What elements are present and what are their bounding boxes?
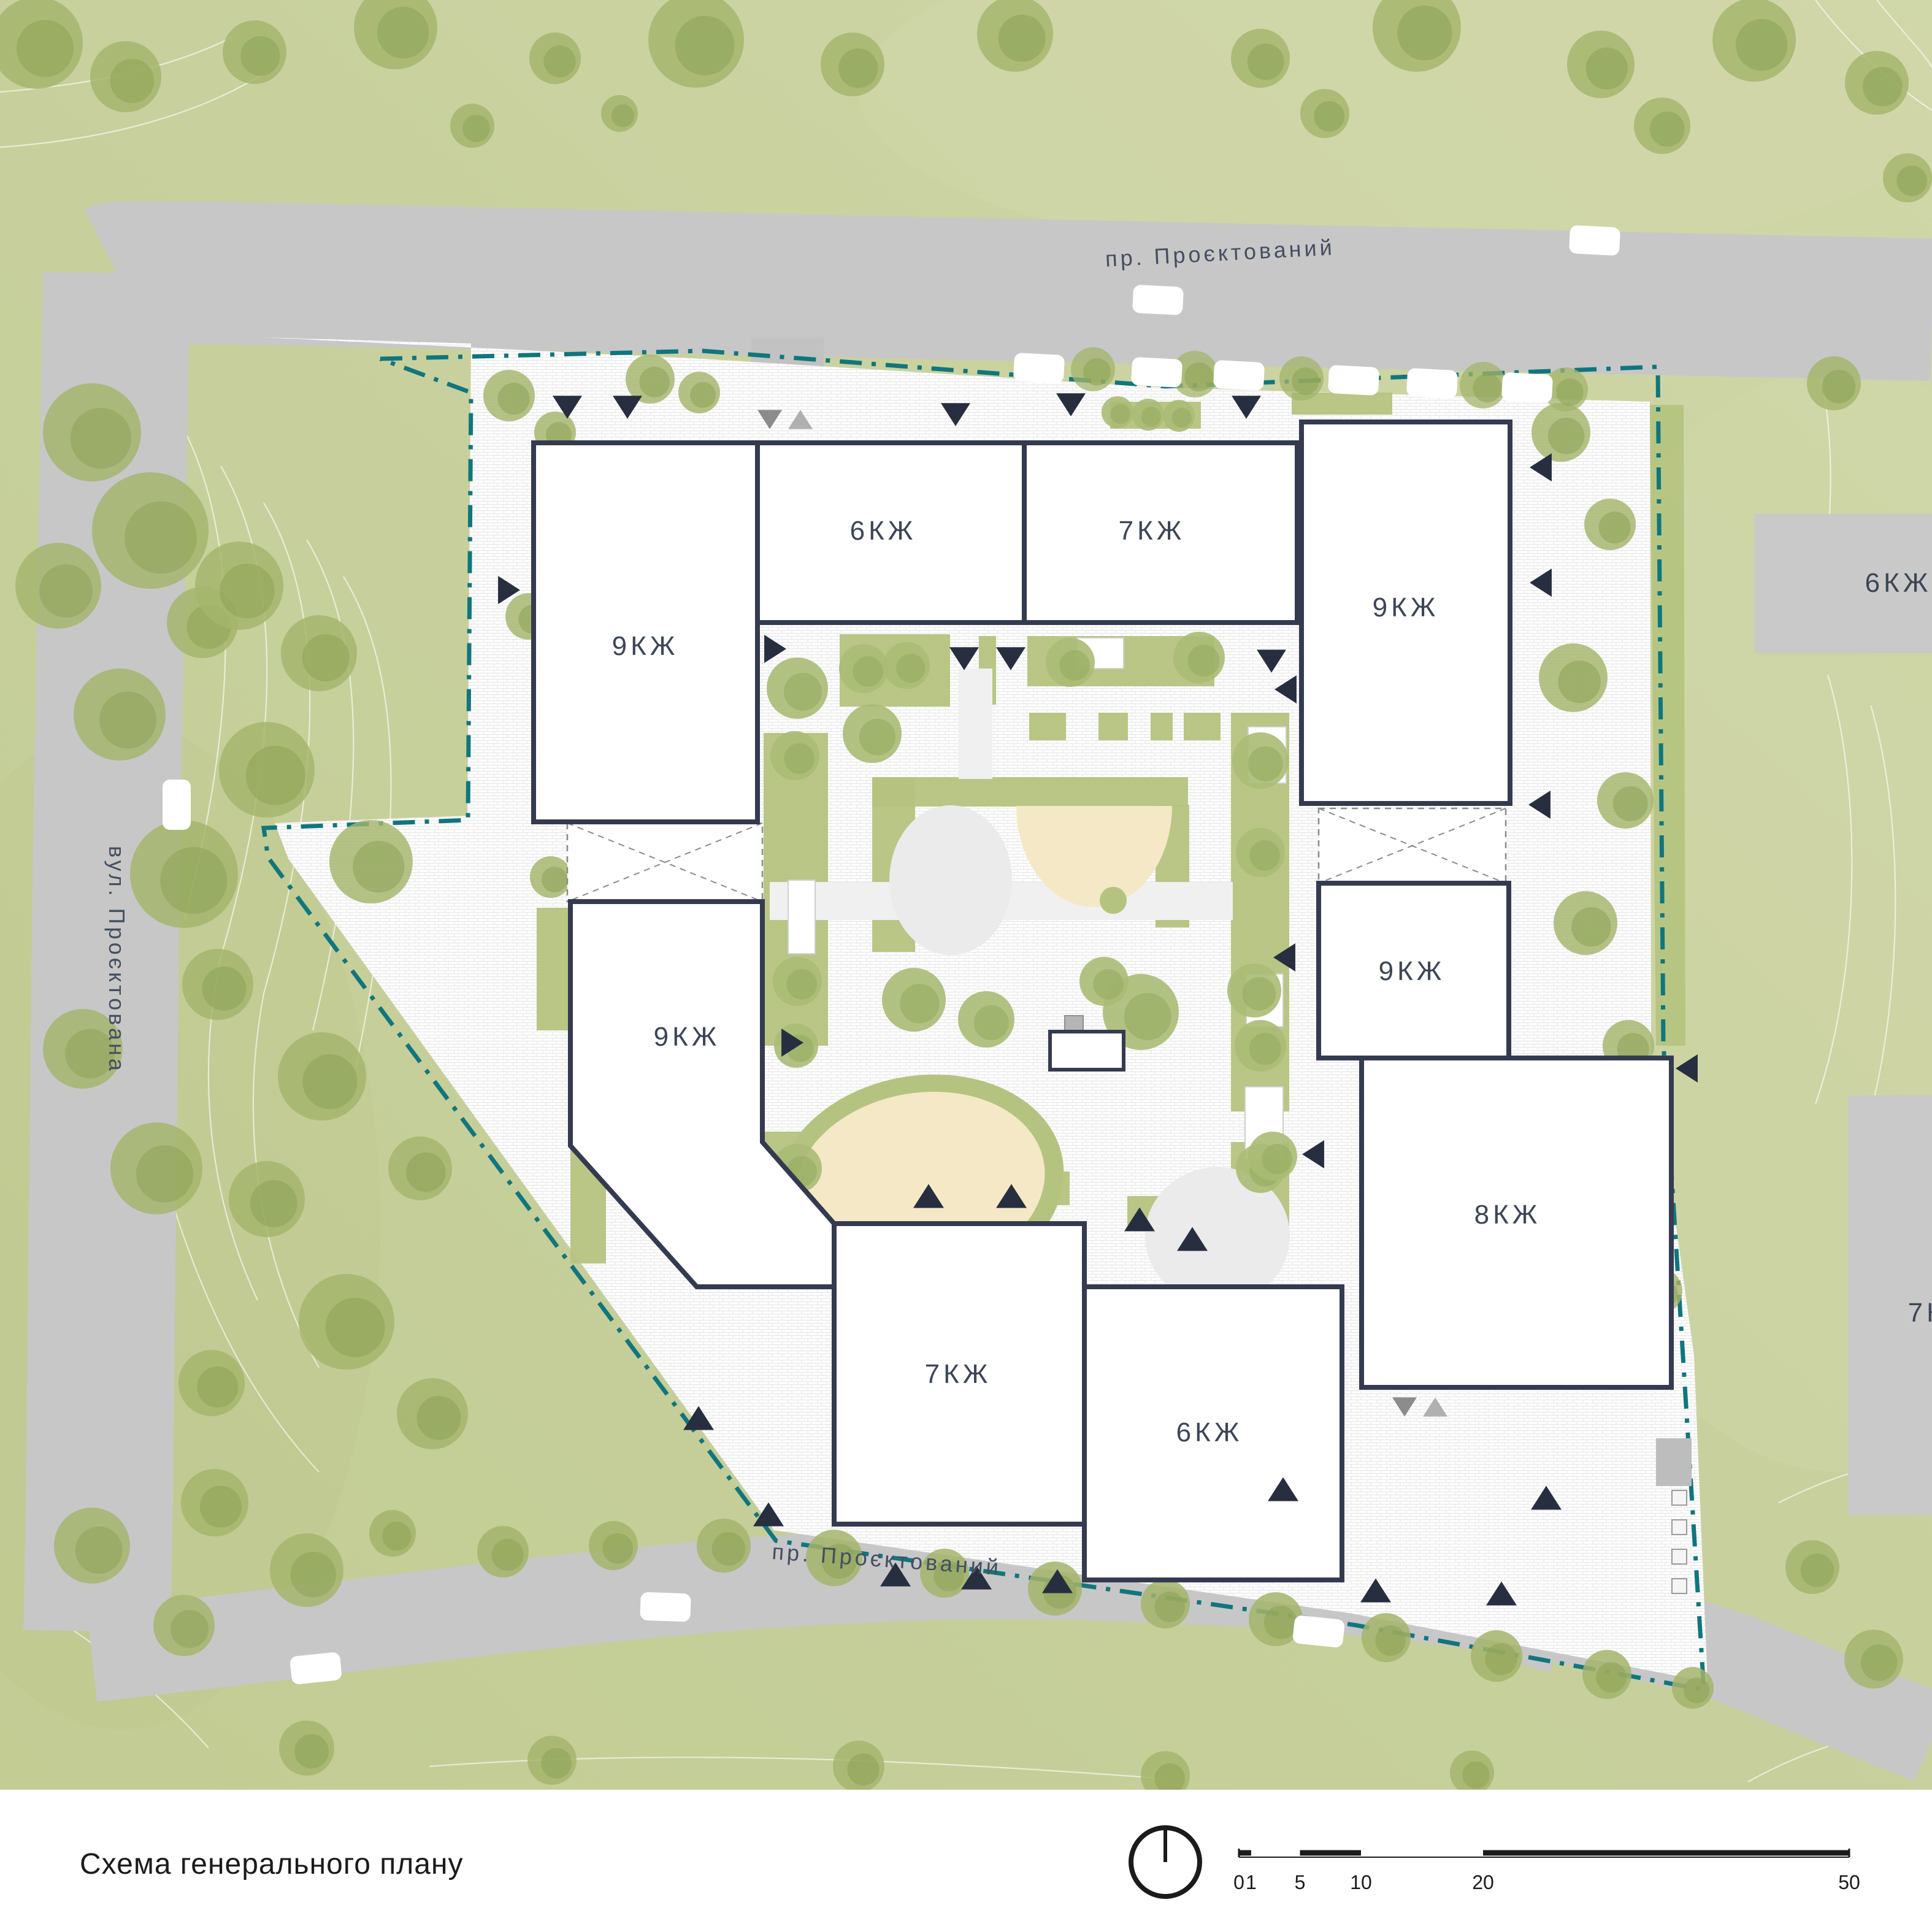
utility-cell: [1672, 1520, 1687, 1535]
tree: [527, 1736, 577, 1785]
building-label: 8КЖ: [1474, 1200, 1541, 1230]
tree: [450, 104, 494, 148]
building-8kzh-j: 8КЖ: [1362, 1058, 1671, 1387]
tree: [1672, 1667, 1714, 1709]
tree: [1102, 396, 1133, 428]
tree: [54, 1508, 130, 1584]
building-6kzh-h: 6КЖ: [1084, 1287, 1342, 1580]
tree: [90, 41, 161, 112]
tree: [43, 383, 141, 481]
tree: [1141, 1751, 1190, 1800]
parked-car: [640, 1592, 691, 1622]
tree: [1046, 638, 1095, 687]
pergola: [788, 880, 815, 954]
tree: [958, 991, 1014, 1048]
tree: [697, 1519, 751, 1573]
building-6kzh-b: 6КЖ: [757, 443, 1024, 623]
planting-bed: [1151, 713, 1173, 740]
tree: [1807, 356, 1861, 410]
pavilion-annex: [1065, 1016, 1083, 1032]
building-9kzh-i: 9КЖ: [1319, 883, 1509, 1058]
tree: [281, 615, 357, 691]
walkway: [959, 669, 992, 779]
tree: [1227, 964, 1281, 1018]
tree: [1235, 1020, 1286, 1071]
scalebar-label: 0: [1233, 1871, 1244, 1893]
tree: [270, 1533, 343, 1607]
tree: [1567, 31, 1635, 98]
tree: [1712, 0, 1796, 82]
parked-car: [1013, 353, 1065, 383]
building-existing-6kzh: 6КЖ: [1754, 514, 1932, 653]
playground: [889, 805, 1012, 955]
tree: [1300, 89, 1349, 138]
parked-car: [1569, 225, 1620, 256]
tree: [1071, 347, 1115, 391]
pavilion: [1050, 1032, 1124, 1070]
tree: [770, 731, 819, 780]
road-label-left: вул. Проєктована: [104, 846, 129, 1074]
planting-bed: [1184, 713, 1221, 740]
tree: [839, 644, 888, 693]
tree: [678, 372, 720, 413]
tree: [74, 669, 166, 761]
parked-car: [163, 780, 191, 830]
building-label: 7КЖ: [1119, 516, 1186, 546]
tree: [1231, 29, 1290, 88]
tree: [1248, 1132, 1297, 1181]
tree: [833, 1741, 884, 1792]
north-arrow-icon: [1131, 1828, 1200, 1896]
tree: [1236, 828, 1285, 877]
tree: [589, 1521, 638, 1570]
parked-car: [1406, 368, 1458, 399]
building-label: 9КЖ: [612, 631, 679, 661]
tree: [1471, 1630, 1522, 1682]
tree: [299, 1274, 394, 1370]
tree: [329, 820, 413, 903]
tree: [601, 95, 638, 132]
building-label: 9КЖ: [654, 1022, 721, 1052]
tree: [182, 949, 253, 1020]
tree: [1173, 632, 1225, 683]
building-existing-7kzh: 7КЖ: [1848, 1095, 1932, 1515]
utility-cell: [1672, 1490, 1687, 1505]
tree: [223, 20, 286, 84]
tree: [178, 1350, 245, 1416]
green-strip: [1650, 405, 1685, 1046]
parked-car: [1328, 365, 1379, 396]
tree: [15, 543, 101, 629]
building-9kzh-d: 9КЖ: [1301, 422, 1510, 803]
planting-bed: [1098, 713, 1128, 740]
parked-car: [1501, 372, 1553, 403]
utility-cell: [1672, 1549, 1687, 1564]
reserved-section: [567, 823, 762, 902]
tree: [477, 1526, 529, 1577]
reserved-section: [1319, 808, 1506, 883]
road-top: [117, 272, 1932, 310]
tree: [388, 1137, 452, 1200]
tree: [1163, 400, 1195, 432]
building-label: 6КЖ: [850, 516, 917, 546]
scalebar-label: 5: [1295, 1871, 1306, 1893]
tree: [1597, 772, 1654, 829]
tree: [369, 1510, 416, 1557]
tree: [92, 472, 209, 589]
layer-legend: Схема генерального плану 015102050: [80, 1828, 1860, 1896]
parked-car: [289, 1652, 342, 1685]
page-title: Схема генерального плану: [80, 1848, 464, 1880]
tree: [1079, 957, 1129, 1006]
scalebar-label: 20: [1472, 1871, 1494, 1893]
center-green-dot: [1100, 887, 1127, 914]
tree: [229, 1161, 305, 1237]
tree: [530, 856, 572, 898]
building-label: 6КЖ: [1865, 568, 1932, 598]
tree: [278, 1032, 366, 1121]
tree: [821, 33, 884, 96]
building-label: 7КЖ: [1908, 1298, 1932, 1328]
tree: [130, 820, 238, 928]
tree: [483, 370, 535, 421]
tree: [1844, 1630, 1903, 1689]
tree: [1582, 1650, 1631, 1699]
tree: [181, 1469, 248, 1536]
tree: [1232, 732, 1289, 789]
tree: [1279, 356, 1324, 401]
tree: [1132, 399, 1164, 431]
tree: [883, 642, 930, 689]
tree: [279, 1720, 334, 1776]
building-label: 9КЖ: [1373, 592, 1439, 623]
parked-car: [1292, 1615, 1345, 1648]
scalebar-label: 1: [1246, 1871, 1257, 1893]
tree: [1785, 1540, 1839, 1594]
scale-bar: 015102050: [1233, 1849, 1860, 1893]
building-label: 9КЖ: [1379, 956, 1446, 986]
tree: [1450, 1750, 1494, 1795]
tree: [1362, 1613, 1411, 1662]
tree: [153, 1595, 215, 1656]
tree: [1460, 362, 1506, 408]
tree: [195, 542, 283, 630]
parked-car: [1131, 357, 1183, 388]
tree: [1883, 153, 1932, 202]
tree: [1634, 98, 1690, 154]
tree: [1845, 51, 1909, 115]
building-7kzh-g: 7КЖ: [834, 1224, 1084, 1524]
tree: [1531, 403, 1590, 462]
scalebar-label: 10: [1350, 1871, 1372, 1893]
tree: [219, 722, 315, 818]
tree: [529, 33, 581, 84]
tree: [110, 1122, 202, 1214]
tree: [1141, 1579, 1190, 1628]
parked-car: [1132, 285, 1184, 315]
building-label: 7КЖ: [925, 1359, 992, 1389]
tree: [882, 968, 946, 1032]
building-7kzh-c: 7КЖ: [1024, 443, 1297, 623]
tree: [773, 957, 822, 1006]
tree: [397, 1378, 468, 1449]
building-9kzh-a: 9КЖ: [534, 443, 757, 822]
parked-car: [1213, 360, 1265, 391]
tree: [1584, 499, 1636, 550]
tree: [843, 704, 902, 763]
scalebar-label: 50: [1838, 1871, 1860, 1893]
map-area: 9КЖ6КЖ7КЖ9КЖ9КЖ8КЖ7КЖ6КЖ9КЖ6КЖ7КЖ пр. Пр…: [0, 0, 1932, 1800]
site-plan: 9КЖ6КЖ7КЖ9КЖ9КЖ8КЖ7КЖ6КЖ9КЖ6КЖ7КЖ пр. Пр…: [0, 0, 1932, 1932]
building-label: 6КЖ: [1176, 1417, 1243, 1447]
planting-bed: [1029, 713, 1066, 740]
tree: [1554, 891, 1617, 955]
utility-cell: [1672, 1579, 1687, 1593]
tree: [1539, 643, 1608, 712]
planting-bed: [872, 777, 1188, 807]
tree: [767, 657, 828, 719]
utility-area: [1656, 1438, 1692, 1486]
